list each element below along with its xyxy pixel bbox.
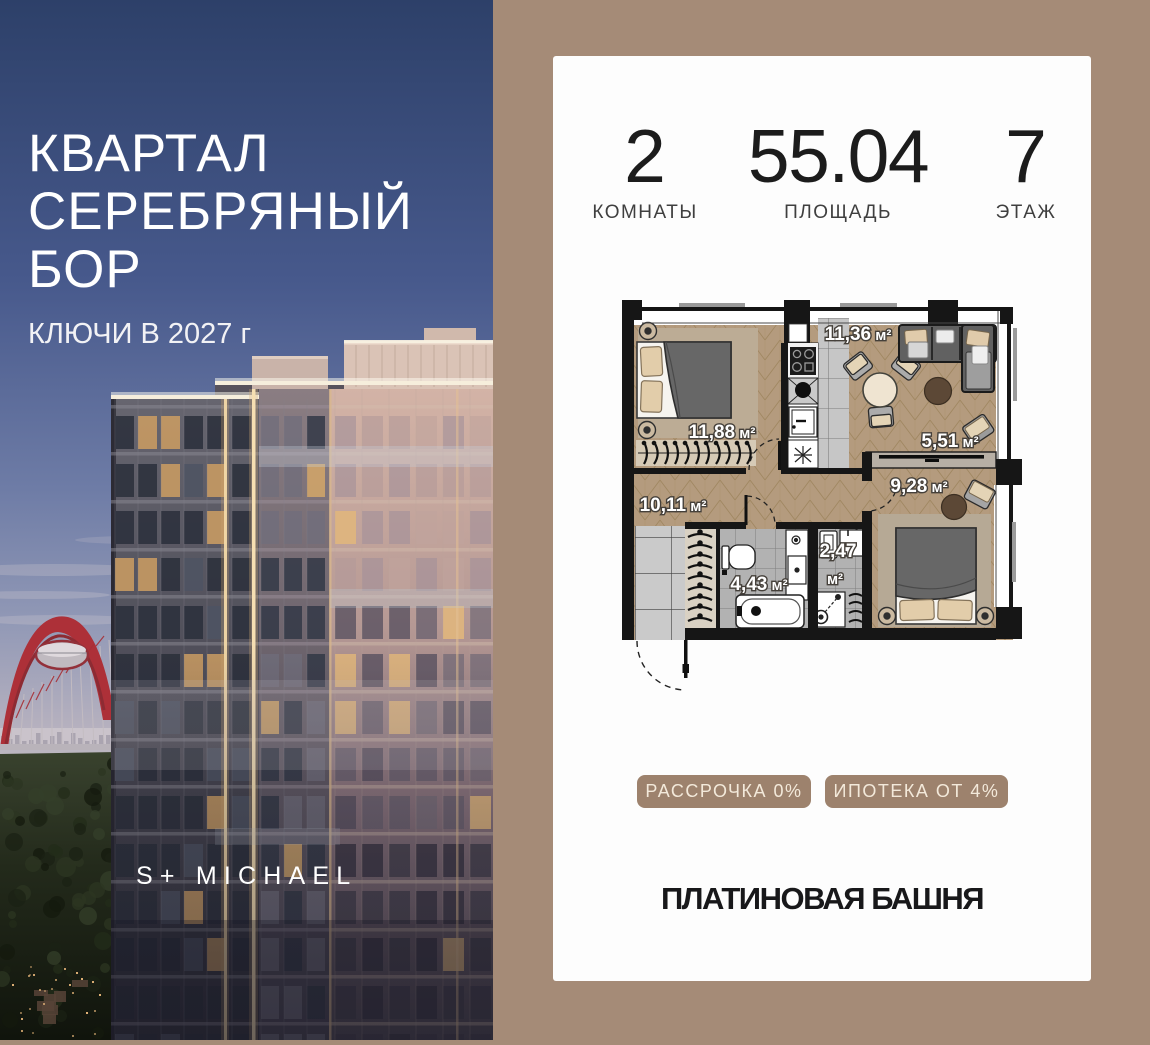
svg-text:S+ MICHAEL: S+ MICHAEL [136, 862, 357, 890]
svg-text:КВАРТАЛ: КВАРТАЛ [28, 124, 270, 183]
svg-text:11,88 м²: 11,88 м² [689, 422, 756, 443]
svg-text:2,47: 2,47 [820, 541, 857, 562]
svg-text:10,11 м²: 10,11 м² [640, 495, 707, 516]
svg-text:м²: м² [827, 571, 843, 588]
svg-text:5,51 м²: 5,51 м² [921, 431, 978, 452]
svg-text:БОР: БОР [28, 240, 142, 299]
svg-text:4,43 м²: 4,43 м² [730, 574, 787, 595]
svg-text:9,28 м²: 9,28 м² [890, 476, 947, 497]
svg-text:11,36 м²: 11,36 м² [825, 324, 892, 345]
svg-text:СЕРЕБРЯНЫЙ: СЕРЕБРЯНЫЙ [28, 180, 413, 241]
svg-text:КЛЮЧИ В 2027 г: КЛЮЧИ В 2027 г [28, 318, 251, 350]
